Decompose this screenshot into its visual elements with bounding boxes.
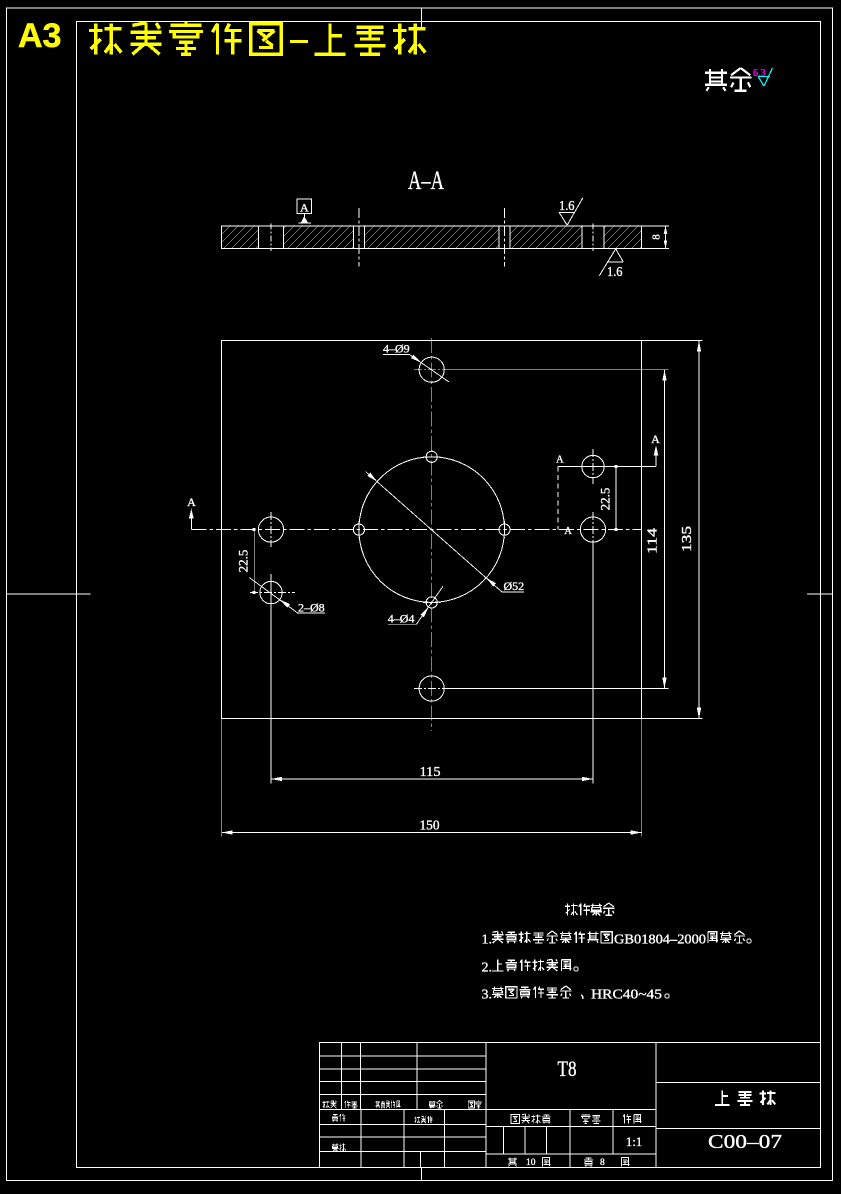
svg-text:10: 10: [526, 1158, 536, 1168]
svg-text:A: A: [564, 526, 572, 537]
svg-text:114: 114: [646, 528, 661, 554]
svg-text:4–Ø9: 4–Ø9: [383, 342, 410, 356]
svg-text:2.: 2.: [482, 961, 493, 976]
svg-text:1.: 1.: [482, 933, 493, 948]
svg-text:4–Ø4: 4–Ø4: [388, 612, 415, 626]
svg-text:6.3: 6.3: [753, 68, 766, 79]
svg-text:22.5: 22.5: [598, 488, 613, 511]
svg-text:C00–07: C00–07: [708, 1131, 782, 1153]
svg-text:2–Ø8: 2–Ø8: [298, 601, 325, 615]
svg-text:A–A: A–A: [408, 166, 444, 195]
svg-text:A: A: [187, 495, 196, 509]
svg-text:A3: A3: [18, 17, 61, 55]
svg-text:135: 135: [680, 526, 695, 552]
svg-text:GB01804–2000: GB01804–2000: [614, 933, 706, 948]
svg-text:A: A: [651, 432, 660, 446]
svg-text:8: 8: [651, 234, 663, 240]
svg-text:A: A: [300, 201, 309, 215]
svg-text:Ø52: Ø52: [504, 579, 525, 593]
svg-text:A: A: [556, 455, 564, 466]
svg-text:1.6: 1.6: [607, 264, 623, 279]
svg-text:150: 150: [420, 819, 440, 834]
svg-text:1.6: 1.6: [559, 198, 575, 213]
svg-text:115: 115: [420, 765, 441, 780]
svg-text:HRC40~45: HRC40~45: [591, 988, 662, 1003]
svg-text:8: 8: [600, 1158, 605, 1168]
svg-text:3.: 3.: [482, 988, 493, 1003]
svg-text:T8: T8: [558, 1056, 577, 1081]
svg-text:22.5: 22.5: [236, 550, 251, 573]
svg-text:1:1: 1:1: [626, 1134, 643, 1149]
